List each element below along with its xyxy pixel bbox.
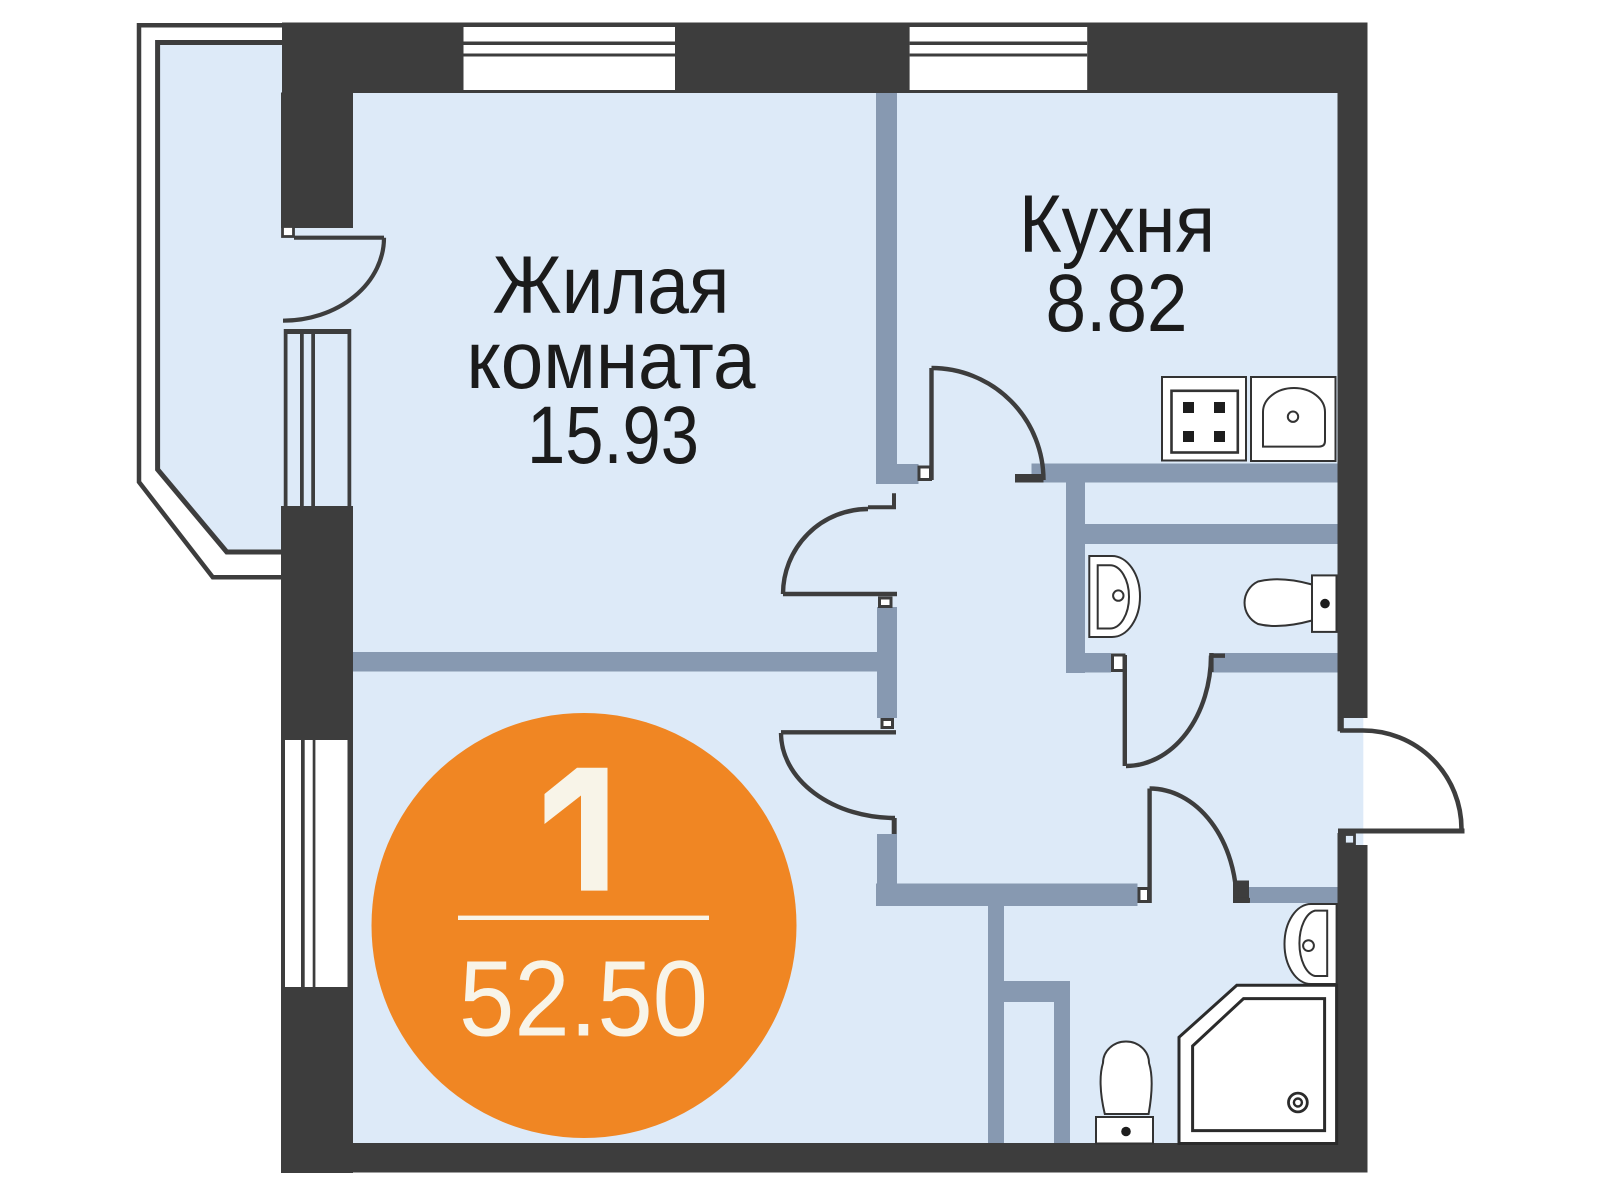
svg-text:8.82: 8.82 bbox=[1046, 258, 1188, 349]
svg-text:52.50: 52.50 bbox=[459, 938, 708, 1059]
svg-text:15.93: 15.93 bbox=[527, 390, 699, 481]
svg-text:Кухня: Кухня bbox=[1019, 179, 1215, 270]
